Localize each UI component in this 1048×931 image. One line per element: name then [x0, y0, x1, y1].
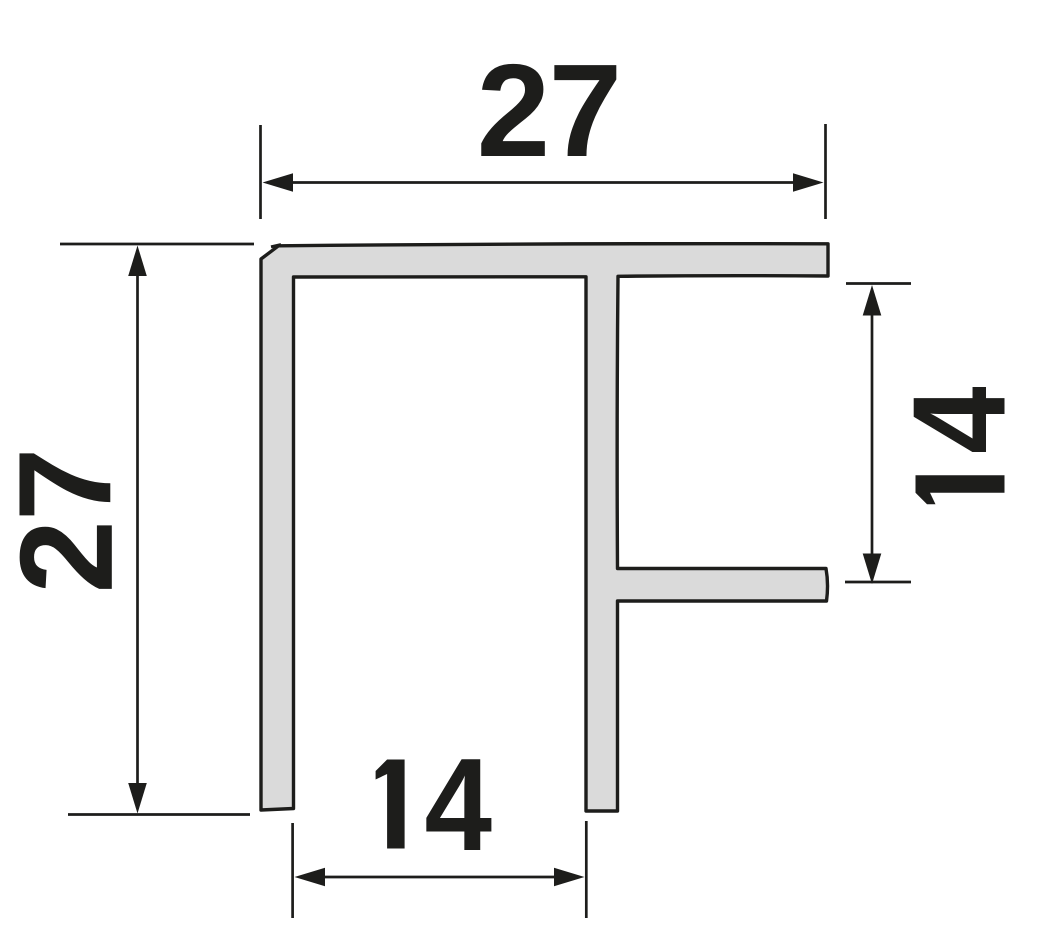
- svg-text:2: 2: [477, 37, 550, 184]
- svg-text:7: 7: [0, 448, 138, 521]
- svg-text:7: 7: [549, 37, 622, 184]
- svg-text:4: 4: [425, 730, 493, 878]
- svg-text:4: 4: [885, 386, 1033, 454]
- svg-text:2: 2: [0, 520, 140, 593]
